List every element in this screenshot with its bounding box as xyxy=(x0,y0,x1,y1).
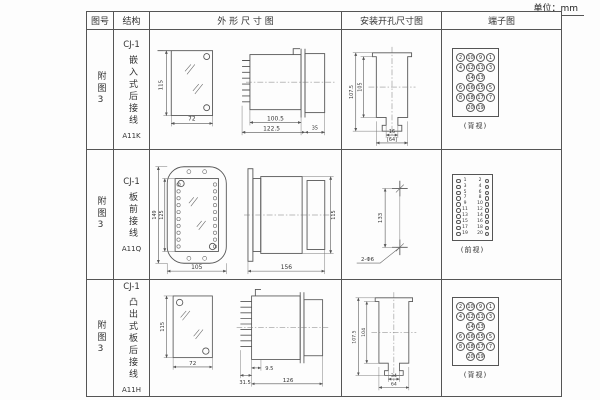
terminal-circle-9: 9 xyxy=(476,53,485,62)
front-view: 115 72 xyxy=(157,50,212,126)
terminal-number-14: 14 xyxy=(477,214,484,219)
fig-no-text: 附图3 xyxy=(96,196,105,233)
terminal-row: 616155 xyxy=(456,332,495,341)
terminal-dot xyxy=(485,220,490,225)
terminal-dots xyxy=(176,182,216,247)
terminal-circle-1: 1 xyxy=(486,53,495,62)
terminal-row: 412113 xyxy=(456,312,495,321)
terminal-pair-row: 910 xyxy=(456,202,489,207)
terminal-circle-5: 5 xyxy=(486,83,495,92)
hole-label: 2-Φ6 xyxy=(360,257,374,263)
terminal-circle-3: 3 xyxy=(486,63,495,72)
terminal-dot xyxy=(456,208,461,213)
terminal-diagram-a11h: 2109141211314136161558181772019 (背视) xyxy=(452,297,499,380)
terminal-circle-15: 15 xyxy=(476,83,485,92)
terminal-dot xyxy=(485,202,490,207)
dim-label-height: 115 xyxy=(158,79,164,89)
outline-drawing-cell-2: 149 125 105 xyxy=(150,150,342,280)
terminal-circle-17: 17 xyxy=(476,93,485,102)
terminal-row: 2019 xyxy=(456,103,495,112)
terminal-number-13: 13 xyxy=(462,214,469,219)
side-view: 156 115 xyxy=(244,168,337,273)
terminal-circle-7: 7 xyxy=(486,93,495,102)
terminal-circle-8: 8 xyxy=(456,342,465,351)
terminal-pair-row: 1516 xyxy=(456,220,489,225)
dim-label-hole-w: 64 xyxy=(390,382,396,388)
terminal-dot xyxy=(456,179,461,184)
terminal-pair-grid: 1234567891011121314151617181920 xyxy=(452,174,493,242)
terminal-pair-row: 1314 xyxy=(456,214,489,219)
dim-label-v-outer: 107.5 xyxy=(351,330,357,343)
header-terminal: 端子图 xyxy=(442,12,561,30)
terminal-dot xyxy=(456,185,461,190)
outline-drawing-cell-3: 115 72 9.5 xyxy=(150,280,342,396)
dim-label-slot-w: 16 xyxy=(388,129,394,135)
glass-mark xyxy=(185,64,195,74)
document-page: 单位：mm 图号 结构 外 形 尺 寸 图 安装开孔尺寸图 端子图 附图3 CJ… xyxy=(0,0,600,400)
terminal-circle-15: 15 xyxy=(476,332,485,341)
terminal-dot xyxy=(456,232,461,237)
dim-label-height: 115 xyxy=(331,210,337,219)
terminal-diagram-a11k: 2109141211314136161558181772019 (背视) xyxy=(452,48,499,131)
glass-mark xyxy=(193,330,202,339)
terminal-number-2: 2 xyxy=(477,179,484,184)
spec-table: 图号 结构 外 形 尺 寸 图 安装开孔尺寸图 端子图 附图3 CJ-1 嵌入式… xyxy=(86,11,562,397)
type-code-label: A11H xyxy=(122,386,141,394)
install-drawing-cell-2: 133 2-Φ6 xyxy=(342,150,442,280)
terminal-grid: 2109141211314136161558181772019 xyxy=(452,48,499,117)
terminal-circle-5: 5 xyxy=(486,332,495,341)
terminal-view-caption: (背视) xyxy=(464,370,487,380)
terminal-number-19: 19 xyxy=(462,232,469,237)
terminal-circle-14: 14 xyxy=(466,73,475,82)
terminal-row: 1413 xyxy=(456,322,495,331)
terminal-circle-9: 9 xyxy=(476,302,485,311)
terminal-dot xyxy=(485,232,490,237)
terminal-number-16: 16 xyxy=(477,220,484,225)
dim-label-v-outer: 107.5 xyxy=(348,84,354,98)
terminal-row: 818177 xyxy=(456,93,495,102)
terminal-circle-2: 2 xyxy=(456,53,465,62)
glass-mark xyxy=(188,197,197,206)
terminal-row: 412113 xyxy=(456,63,495,72)
glass-mark xyxy=(192,84,202,94)
model-label: CJ-1 xyxy=(123,282,140,292)
structure-cell-1: CJ-1 嵌入式后接线 A11K xyxy=(114,30,150,150)
outline-drawing-a11k: 115 72 100.5 xyxy=(151,31,341,149)
terminal-circle-12: 12 xyxy=(466,312,475,321)
glass-mark xyxy=(180,311,189,320)
terminal-circle-20: 20 xyxy=(466,352,475,361)
terminal-dot xyxy=(456,202,461,207)
structure-label: 凸出式板后接线 xyxy=(127,297,136,381)
terminal-dot xyxy=(485,214,490,219)
terminal-circle-16: 16 xyxy=(466,332,475,341)
dim-label-term-len: 31.5 xyxy=(239,380,250,386)
terminal-number-17: 17 xyxy=(462,226,469,231)
terminal-dot xyxy=(485,179,490,184)
terminal-circle-13: 13 xyxy=(476,73,485,82)
hook xyxy=(255,289,261,296)
dim-label-plate-h: 149 xyxy=(151,210,157,219)
fig-no-cell-2: 附图3 xyxy=(87,150,114,280)
terminal-row: 2019 xyxy=(456,352,495,361)
front-view: 149 125 105 xyxy=(151,166,225,273)
dim-label-plate-w: 105 xyxy=(191,265,202,271)
install-drawing-a11q: 133 2-Φ6 xyxy=(343,151,441,279)
dim-label-hole-w: [64] xyxy=(386,136,396,142)
terminal-circle-18: 18 xyxy=(466,342,475,351)
terminal-dot xyxy=(456,220,461,225)
terminal-view-caption: (背视) xyxy=(464,121,487,131)
terminal-row: 21091 xyxy=(456,53,495,62)
type-code-label: A11K xyxy=(122,132,140,140)
dim-label-height: 115 xyxy=(159,322,165,332)
terminal-diagram-cell-2: 1234567891011121314151617181920 (前视) xyxy=(442,150,561,280)
install-drawing-a11k: 107.5 105 16 [64] xyxy=(343,31,441,149)
terminal-number-11: 11 xyxy=(462,208,469,213)
outline-drawing-a11q: 149 125 105 xyxy=(151,151,341,279)
fig-no-text: 附图3 xyxy=(96,320,105,357)
terminal-circle-13: 13 xyxy=(476,322,485,331)
header-fig-no: 图号 xyxy=(87,12,114,30)
terminal-circle-18: 18 xyxy=(466,93,475,102)
terminal-circle-3: 3 xyxy=(486,312,495,321)
fig-no-text: 附图3 xyxy=(96,71,105,108)
terminal-circle-17: 17 xyxy=(476,342,485,351)
model-label: CJ-1 xyxy=(123,177,140,187)
terminal-pair-row: 12 xyxy=(456,179,489,184)
side-view: 100.5 122.5 35 xyxy=(242,48,334,135)
terminal-pair-row: 1718 xyxy=(456,226,489,231)
install-drawing-cell-1: 107.5 105 16 [64] xyxy=(342,30,442,150)
terminal-number-12: 12 xyxy=(477,208,484,213)
dim-label-slot-w: 34 xyxy=(390,373,396,379)
terminal-circle-1: 1 xyxy=(486,302,495,311)
dim-label-length: 156 xyxy=(280,265,291,271)
terminal-circle-4: 4 xyxy=(456,312,465,321)
dim-label-rear-len: 35 xyxy=(311,125,317,131)
terminal-dot xyxy=(456,191,461,196)
side-view: 9.5 31.5 126 xyxy=(236,289,329,386)
outline-drawing-cell-1: 115 72 100.5 xyxy=(150,30,342,150)
header-structure: 结构 xyxy=(114,12,150,30)
glass-mark xyxy=(196,220,205,229)
terminal-diagram-cell-3: 2109141211314136161558181772019 (背视) xyxy=(442,280,561,396)
dim-label-v-inner: 104 xyxy=(360,328,366,337)
fig-no-cell-1: 附图3 xyxy=(87,30,114,150)
terminal-row: 21091 xyxy=(456,302,495,311)
terminal-number-3: 3 xyxy=(462,185,469,190)
structure-label: 板前接线 xyxy=(127,192,136,240)
fig-no-cell-3: 附图3 xyxy=(87,280,114,396)
terminal-dot xyxy=(485,226,490,231)
terminal-circle-6: 6 xyxy=(456,83,465,92)
terminal-circle-14: 14 xyxy=(466,322,475,331)
structure-label: 嵌入式后接线 xyxy=(127,55,136,127)
terminal-dot xyxy=(485,191,490,196)
terminal-pair-row: 34 xyxy=(456,185,489,190)
terminal-pair-row: 1112 xyxy=(456,208,489,213)
install-drawing-a11h: 107.5 104 34 64 xyxy=(343,281,441,395)
dim-label-step: 9.5 xyxy=(265,366,273,372)
terminal-grid: 2109141211314136161558181772019 xyxy=(452,297,499,366)
structure-cell-3: CJ-1 凸出式板后接线 A11H xyxy=(114,280,150,396)
terminal-circle-12: 12 xyxy=(466,63,475,72)
outline-drawing-a11h: 115 72 9.5 xyxy=(151,281,341,395)
terminal-circle-11: 11 xyxy=(476,312,485,321)
dim-label-inner-h: 125 xyxy=(158,210,164,219)
terminal-number-18: 18 xyxy=(477,226,484,231)
dim-label-length: 126 xyxy=(282,378,293,384)
terminal-row: 1413 xyxy=(456,73,495,82)
terminal-dot xyxy=(485,196,490,201)
terminal-number-4: 4 xyxy=(477,185,484,190)
terminal-number-1: 1 xyxy=(462,179,469,184)
terminal-view-caption: (前视) xyxy=(461,245,484,255)
terminal-number-15: 15 xyxy=(462,220,469,225)
terminal-pair-row: 78 xyxy=(456,196,489,201)
terminal-circle-19: 19 xyxy=(476,352,485,361)
model-label: CJ-1 xyxy=(123,40,140,50)
structure-cell-2: CJ-1 板前接线 A11Q xyxy=(114,150,150,280)
terminal-circle-20: 20 xyxy=(466,103,475,112)
front-view: 115 72 xyxy=(159,296,212,370)
hook xyxy=(293,48,300,54)
terminal-diagram-cell-1: 2109141211314136161558181772019 (背视) xyxy=(442,30,561,150)
terminal-dot xyxy=(456,226,461,231)
terminal-row: 616155 xyxy=(456,83,495,92)
terminal-circle-8: 8 xyxy=(456,93,465,102)
terminal-circle-2: 2 xyxy=(456,302,465,311)
terminal-comb xyxy=(242,60,250,101)
terminal-comb xyxy=(240,302,251,347)
header-install: 安装开孔尺寸图 xyxy=(342,12,442,30)
terminal-circle-10: 10 xyxy=(466,53,475,62)
dim-label-spacing: 133 xyxy=(378,212,384,222)
terminal-circle-19: 19 xyxy=(476,103,485,112)
terminal-number-20: 20 xyxy=(477,232,484,237)
terminal-circle-4: 4 xyxy=(456,63,465,72)
terminal-circle-10: 10 xyxy=(466,302,475,311)
dim-label-width: 72 xyxy=(189,361,196,367)
terminal-diagram-a11q: 1234567891011121314151617181920 (前视) xyxy=(452,174,493,256)
terminal-circle-6: 6 xyxy=(456,332,465,341)
terminal-circle-7: 7 xyxy=(486,342,495,351)
terminal-dot xyxy=(485,208,490,213)
terminal-dot xyxy=(456,214,461,219)
terminal-row: 818177 xyxy=(456,342,495,351)
terminal-circle-11: 11 xyxy=(476,63,485,72)
dim-label-width: 72 xyxy=(188,116,196,122)
dim-label-v-inner: 105 xyxy=(357,82,363,91)
dim-label-overall-len: 122.5 xyxy=(263,126,280,132)
terminal-pair-row: 56 xyxy=(456,191,489,196)
terminal-circle-16: 16 xyxy=(466,83,475,92)
type-code-label: A11Q xyxy=(122,245,141,253)
header-outline: 外 形 尺 寸 图 xyxy=(150,12,342,30)
terminal-dot xyxy=(485,185,490,190)
install-drawing-cell-3: 107.5 104 34 64 xyxy=(342,280,442,396)
terminal-pair-row: 1920 xyxy=(456,232,489,237)
dim-label-body-len: 100.5 xyxy=(267,116,284,122)
terminal-dot xyxy=(456,196,461,201)
